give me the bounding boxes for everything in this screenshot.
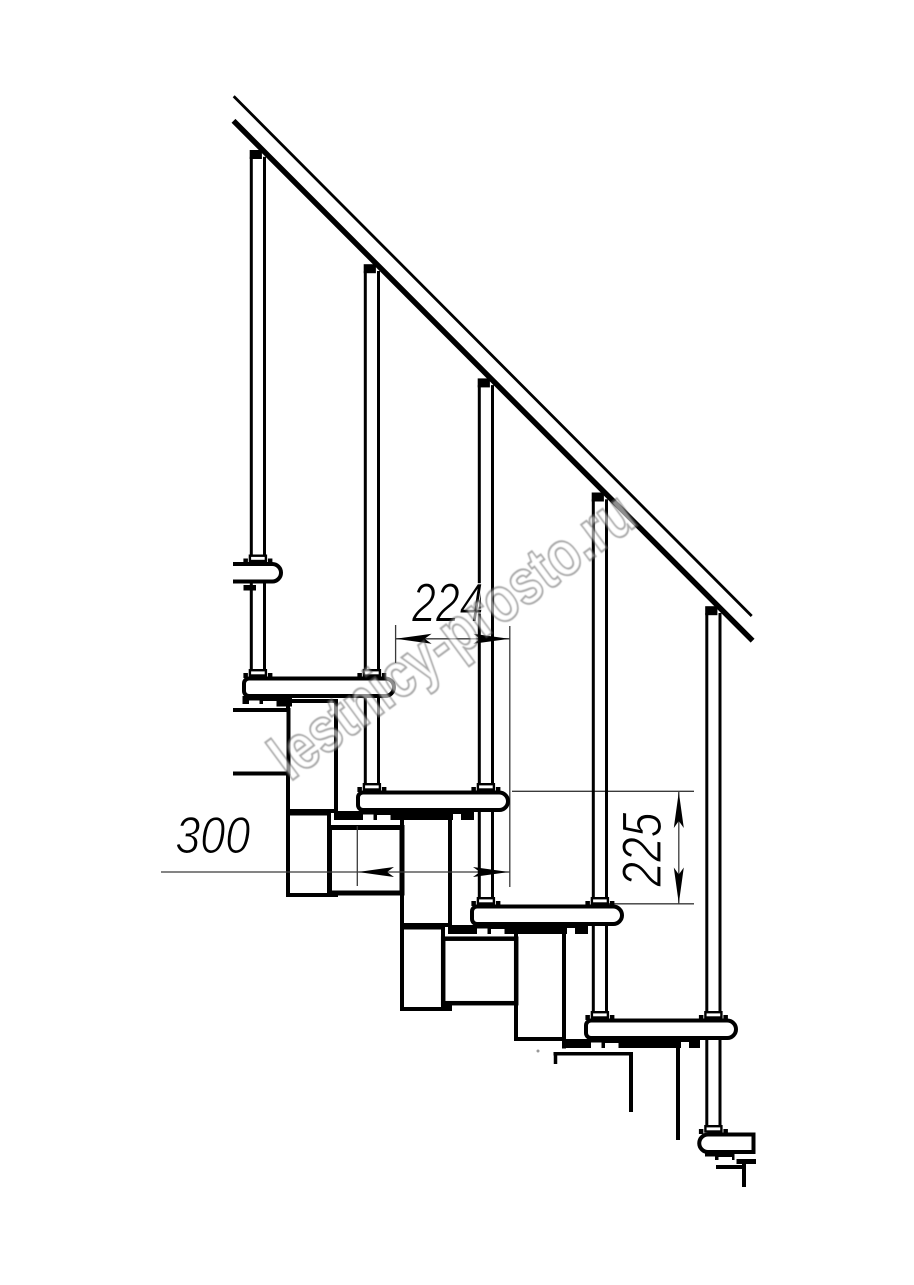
svg-text:225: 225 <box>610 812 673 887</box>
svg-text:300: 300 <box>175 807 250 865</box>
